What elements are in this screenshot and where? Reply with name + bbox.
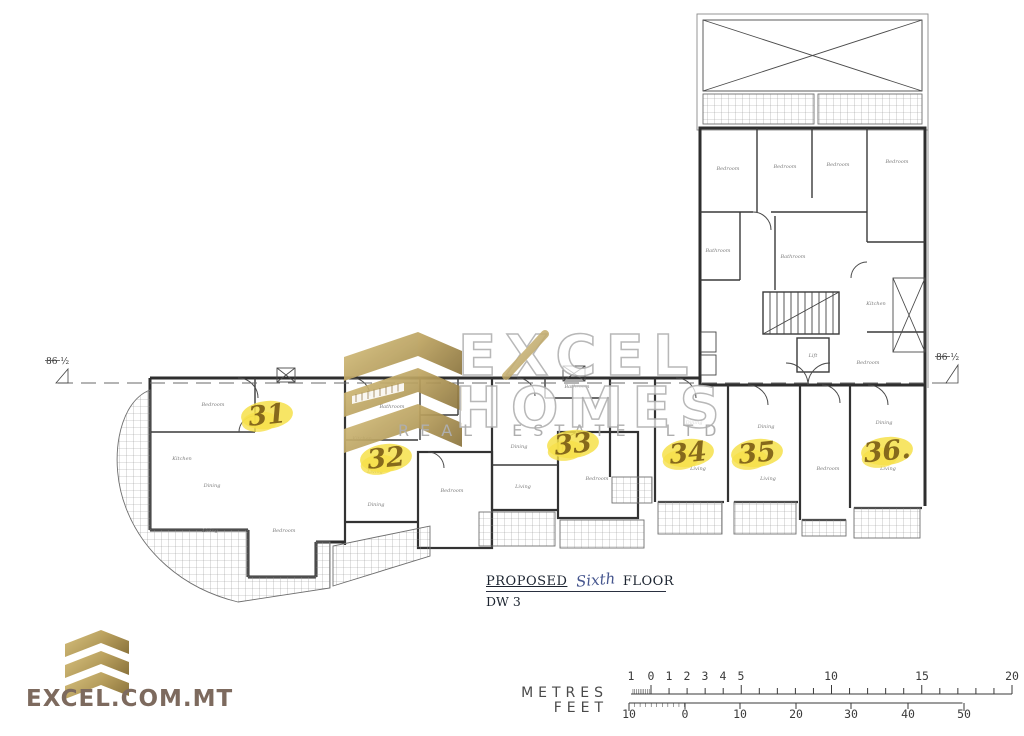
floor-label: FLOOR: [623, 574, 674, 589]
wc-fixture: [701, 332, 716, 352]
unit-number: 31: [247, 398, 288, 433]
metres-tick-label: 5: [738, 669, 745, 683]
metres-tick-label: 3: [702, 669, 709, 683]
proposed-label: PROPOSED: [486, 574, 567, 589]
datum-level-label: 86 ½: [46, 356, 69, 367]
staircase: [763, 292, 839, 334]
feet-tick-label: 10: [733, 707, 747, 721]
datum-triangle: [56, 369, 68, 383]
room-label: Bedroom: [856, 360, 880, 366]
metres-tick-label: 2: [684, 669, 691, 683]
room-label: Dining: [367, 502, 385, 508]
roof-hatch: [818, 94, 922, 124]
floor-plan-sheet: 86 ½86 ½ BedroomBedroomBedroomBedroomBat…: [0, 0, 1024, 736]
unit-highlight: 31: [240, 397, 295, 433]
unit-number: 34: [668, 436, 709, 471]
feet-tick-label: 20: [789, 707, 803, 721]
watermark: EXCEL HOMES REAL ESTATE LTD: [344, 324, 729, 453]
metres-tick-label: 10: [824, 669, 838, 683]
room-label: Bedroom: [272, 528, 296, 534]
room-label: Dining: [875, 420, 893, 426]
metres-tick-label: 1: [628, 669, 635, 683]
roof-hatch: [703, 94, 814, 124]
room-label: Bedroom: [716, 166, 740, 172]
unit-number: 33: [553, 427, 594, 462]
feet-tick-label: 10: [622, 707, 636, 721]
room-label: Dining: [203, 483, 221, 489]
feet-tick-label: 30: [844, 707, 858, 721]
floor-name-handwritten: Sixth: [575, 569, 616, 590]
room-label: Lift: [808, 353, 819, 359]
room-label: Bedroom: [773, 164, 797, 170]
shaft-void: [893, 278, 925, 352]
room-label: Living: [201, 528, 218, 534]
room-label: Kitchen: [865, 301, 886, 307]
room-label: Dining: [510, 444, 528, 450]
feet-tick-label: 50: [957, 707, 971, 721]
metres-label: METRES: [521, 685, 608, 701]
agency-logo-text: EXCEL.COM.MT: [26, 686, 233, 712]
room-label: Living: [514, 484, 531, 490]
room-label: Bedroom: [816, 466, 840, 472]
metres-tick-label: 4: [720, 669, 727, 683]
feet-tick-label: 40: [901, 707, 915, 721]
room-label: Bedroom: [885, 159, 909, 165]
scale-bars: METRES FEET 1012345101520 1001020304050: [521, 669, 1019, 721]
metres-tick-label: 1: [666, 669, 673, 683]
tower-block: [700, 20, 925, 506]
unit-number: 35: [737, 436, 778, 471]
feet-ruler: 1001020304050: [622, 703, 971, 721]
datum-level-label: 86 ½: [936, 352, 959, 363]
room-label: Bedroom: [826, 162, 850, 168]
room-label: Kitchen: [171, 456, 192, 462]
unit-highlight: 36.: [860, 433, 915, 469]
metres-tick-label: 0: [648, 669, 655, 683]
feet-label: FEET: [554, 700, 608, 716]
dwelling-ref: DW 3: [486, 594, 666, 609]
room-label: Bathroom: [378, 404, 404, 410]
agency-logo: EXCEL.COM.MT: [24, 620, 234, 720]
datum-triangle: [946, 365, 958, 383]
unit-highlight: 35: [730, 435, 785, 471]
room-label: Bathroom: [704, 248, 730, 254]
metres-ruler: 1012345101520: [628, 669, 1019, 694]
unit-number: 32: [366, 441, 407, 476]
room-label: Living: [759, 476, 776, 482]
unit-highlight: 32: [359, 440, 414, 476]
room-label: Bedroom: [201, 402, 225, 408]
title-block: PROPOSED Sixth FLOOR DW 3: [486, 570, 666, 609]
room-label: Bedroom: [585, 476, 609, 482]
metres-tick-label: 15: [915, 669, 929, 683]
room-label: Bathroom: [779, 254, 805, 260]
feet-tick-label: 0: [682, 707, 689, 721]
unit-number: 36.: [862, 434, 912, 470]
metres-tick-label: 20: [1005, 669, 1019, 683]
title-row: PROPOSED Sixth FLOOR: [486, 570, 666, 592]
room-label: Dining: [757, 424, 775, 430]
wc-fixture: [701, 355, 716, 375]
room-label: Bedroom: [440, 488, 464, 494]
